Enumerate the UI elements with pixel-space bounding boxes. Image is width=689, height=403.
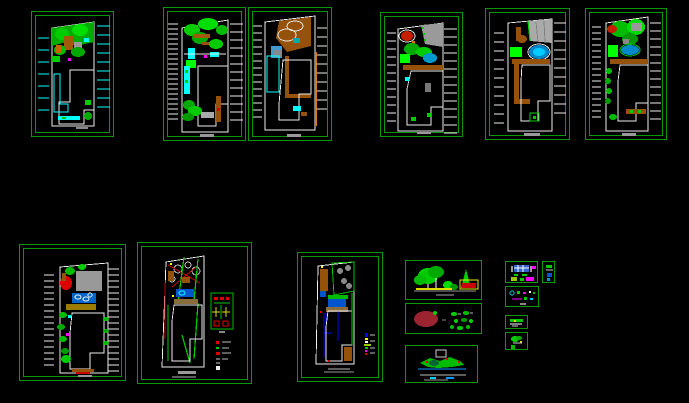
sheet-art bbox=[406, 304, 483, 335]
sheet-art bbox=[406, 261, 483, 301]
sheet-dimension-plan[interactable] bbox=[163, 7, 246, 141]
sheet-art bbox=[298, 253, 384, 383]
box-detail-a[interactable] bbox=[505, 315, 528, 329]
sheet-planting-plan-b[interactable] bbox=[585, 8, 667, 140]
sheet-paving-plan[interactable] bbox=[485, 8, 570, 140]
box-detail-narrow[interactable] bbox=[542, 261, 555, 283]
sheet-art bbox=[543, 262, 556, 284]
sheet-art bbox=[164, 8, 247, 142]
box-symbols[interactable] bbox=[505, 286, 539, 307]
sheet-art bbox=[406, 346, 479, 384]
box-detail-b[interactable] bbox=[505, 332, 528, 350]
sheet-overall-plan[interactable] bbox=[19, 244, 126, 381]
sheet-irrigation-plan[interactable] bbox=[297, 252, 383, 382]
panel-tree-elevation[interactable] bbox=[405, 260, 482, 300]
box-pavilion-detail[interactable] bbox=[505, 261, 538, 283]
sheet-art bbox=[506, 262, 539, 284]
sheet-art bbox=[506, 287, 540, 308]
sheet-electrical-plan[interactable] bbox=[137, 242, 252, 384]
sheet-art bbox=[138, 243, 253, 385]
sheet-planting-plan-a[interactable] bbox=[31, 11, 114, 137]
panel-stone-detail[interactable] bbox=[405, 303, 482, 334]
sheet-art bbox=[506, 316, 529, 330]
sheet-art bbox=[381, 13, 464, 138]
sheet-art bbox=[586, 9, 668, 141]
panel-rockery-elevation[interactable] bbox=[405, 345, 478, 383]
sheet-site-plan-b[interactable] bbox=[380, 12, 463, 137]
cad-model-space[interactable] bbox=[0, 0, 689, 403]
sheet-art bbox=[486, 9, 571, 141]
sheet-layout-plan[interactable] bbox=[248, 7, 332, 141]
sheet-art bbox=[249, 8, 333, 142]
sheet-art bbox=[506, 333, 529, 351]
sheet-art bbox=[32, 12, 115, 138]
sheet-art bbox=[20, 245, 127, 382]
